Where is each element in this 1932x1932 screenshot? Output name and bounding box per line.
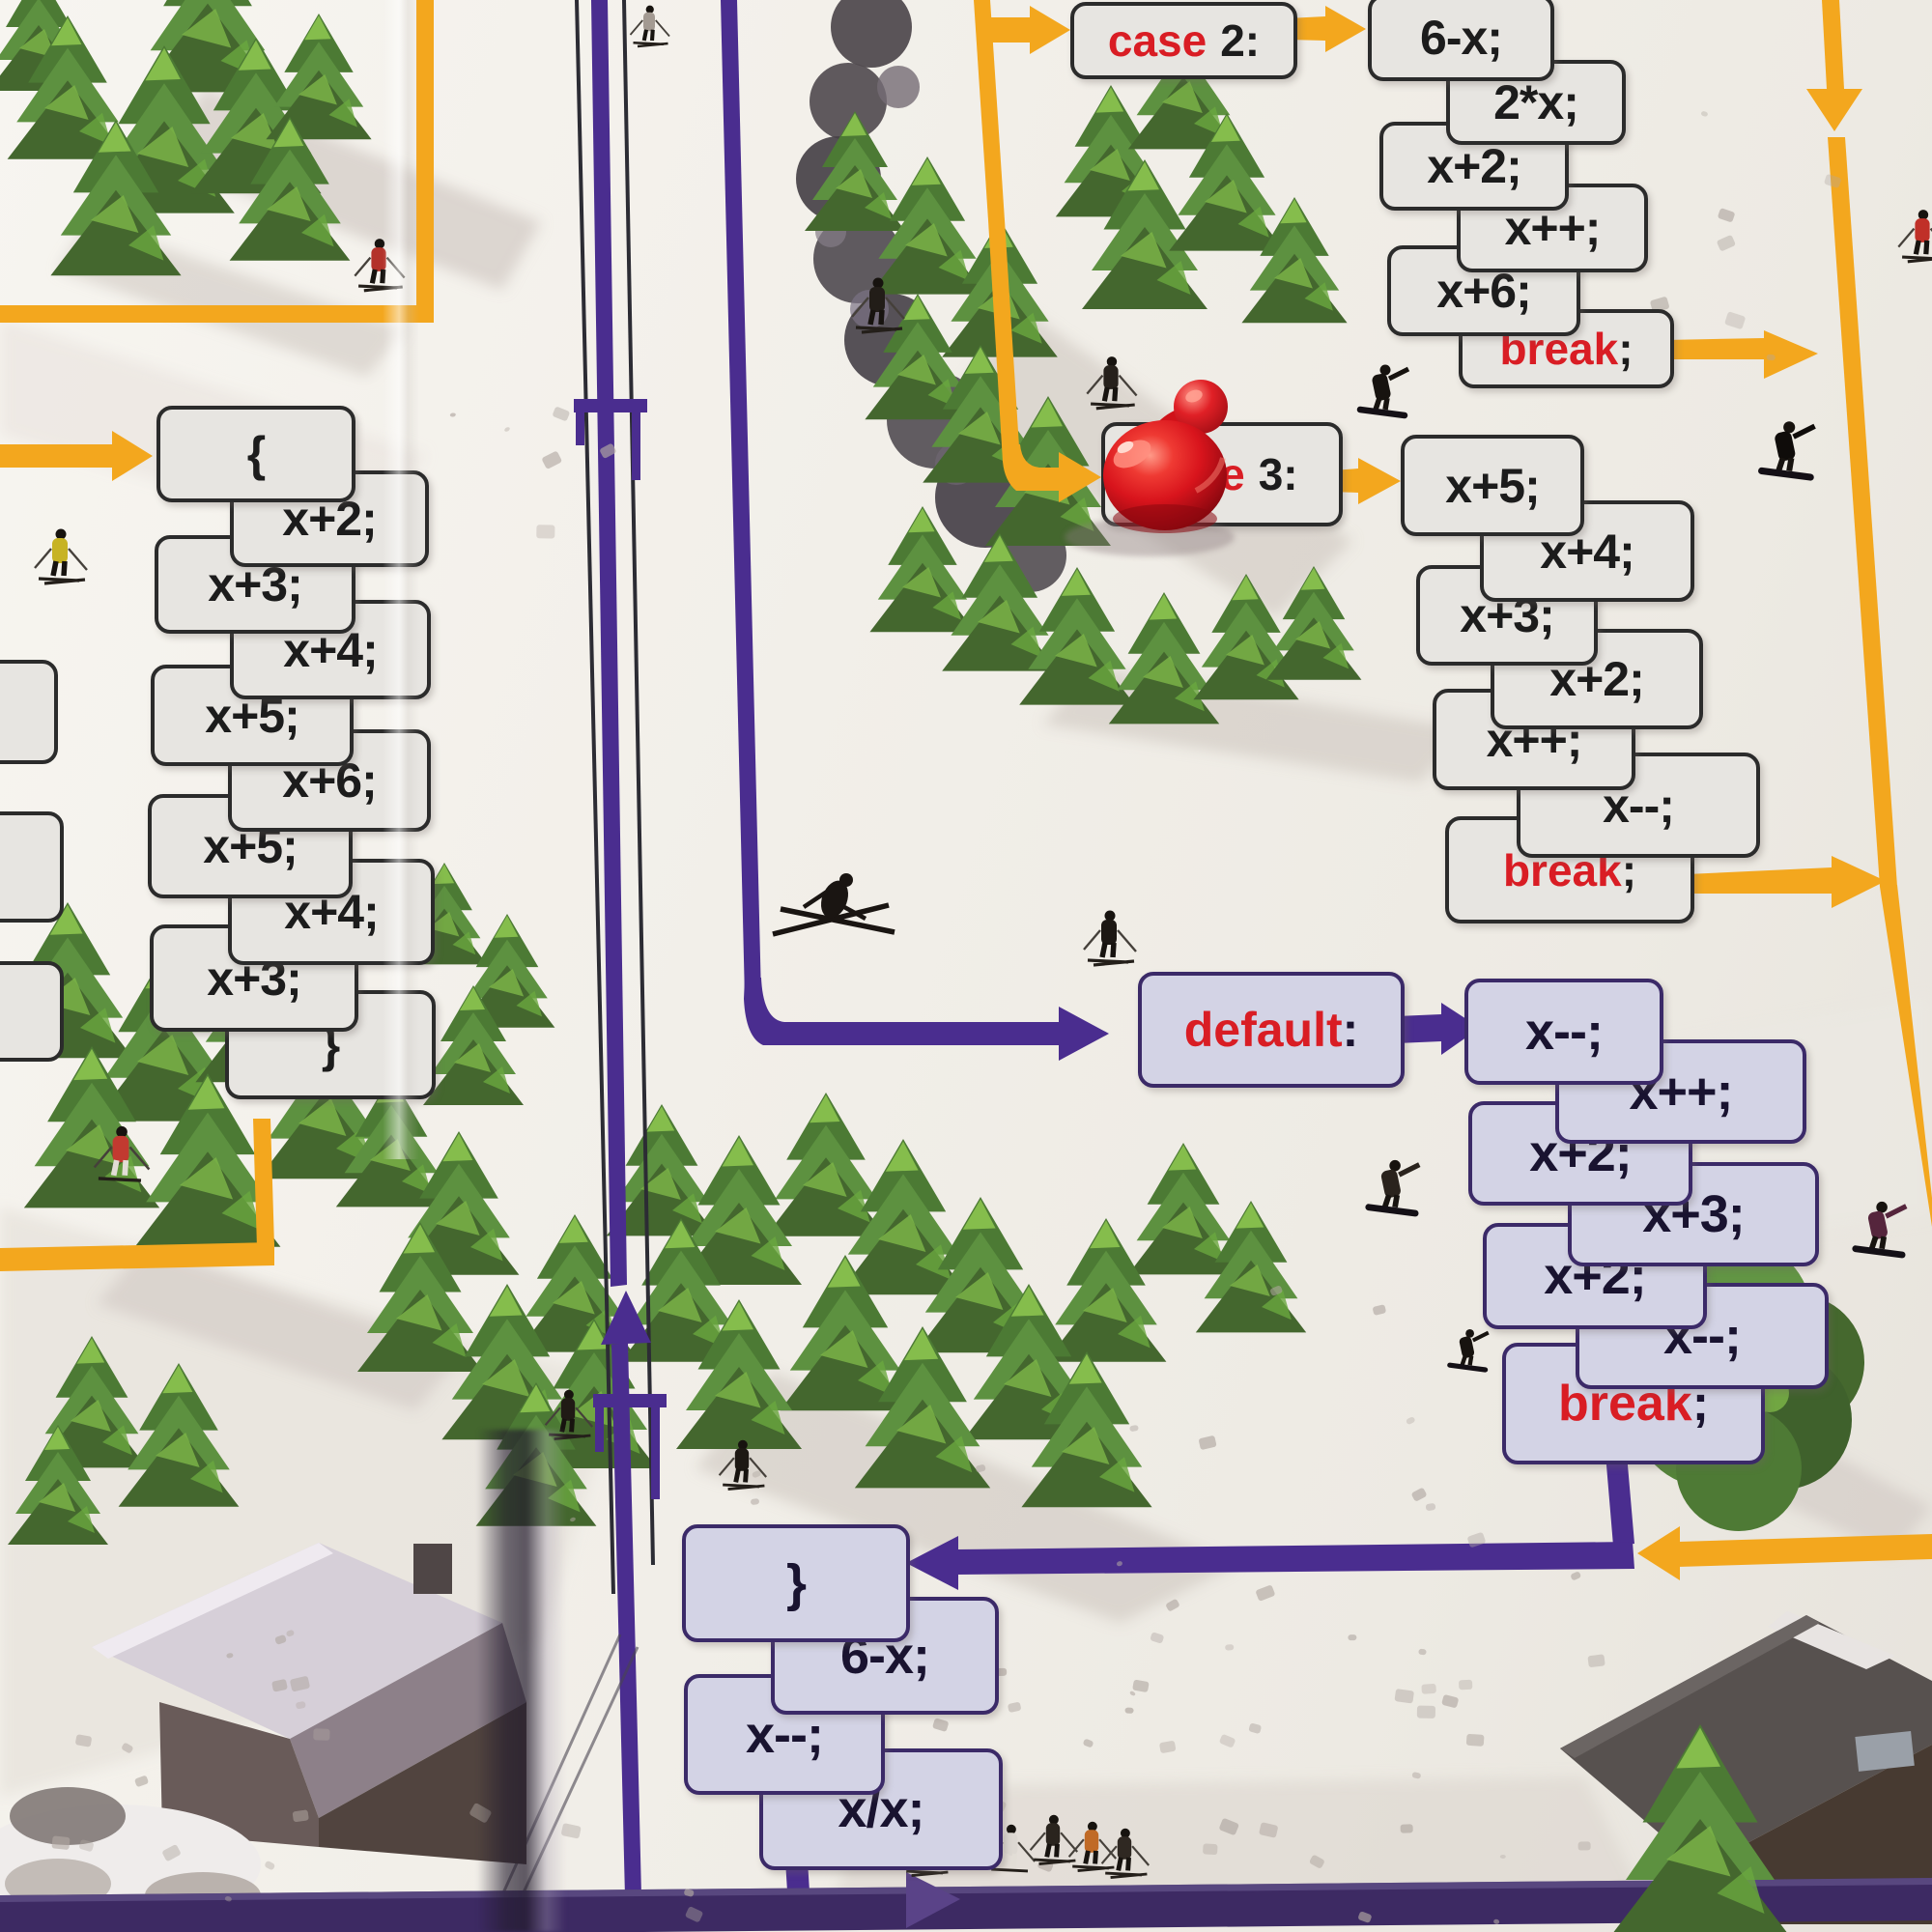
case2-header[interactable]: case2: — [1070, 2, 1297, 79]
space-open-brace[interactable]: { — [156, 406, 355, 502]
space-code[interactable]: x--; — [1464, 979, 1663, 1085]
case-value: 2: — [1220, 18, 1260, 63]
case-keyword: case — [1108, 18, 1207, 63]
partial-box[interactable] — [0, 660, 58, 764]
space-code[interactable]: 6-x; — [1368, 0, 1554, 81]
partial-box[interactable] — [0, 811, 64, 923]
default-header[interactable]: default: — [1138, 972, 1405, 1088]
case-value: 3: — [1259, 452, 1298, 497]
case-keyword: case — [1146, 452, 1244, 497]
flowchart-boxes: { x+2; x+3; x+4; x+5; x+6; x+5; x+4; x+3… — [0, 0, 1932, 1932]
game-board: { x+2; x+3; x+4; x+5; x+6; x+5; x+4; x+3… — [0, 0, 1932, 1932]
space-close-brace[interactable]: } — [682, 1524, 910, 1642]
partial-box[interactable] — [0, 961, 64, 1062]
case3-header[interactable]: case3: — [1101, 422, 1343, 526]
space-code[interactable]: x+5; — [1401, 435, 1584, 536]
default-keyword: default — [1184, 1006, 1343, 1054]
break-semicolon: ; — [1618, 327, 1633, 371]
default-colon: : — [1343, 1006, 1359, 1054]
